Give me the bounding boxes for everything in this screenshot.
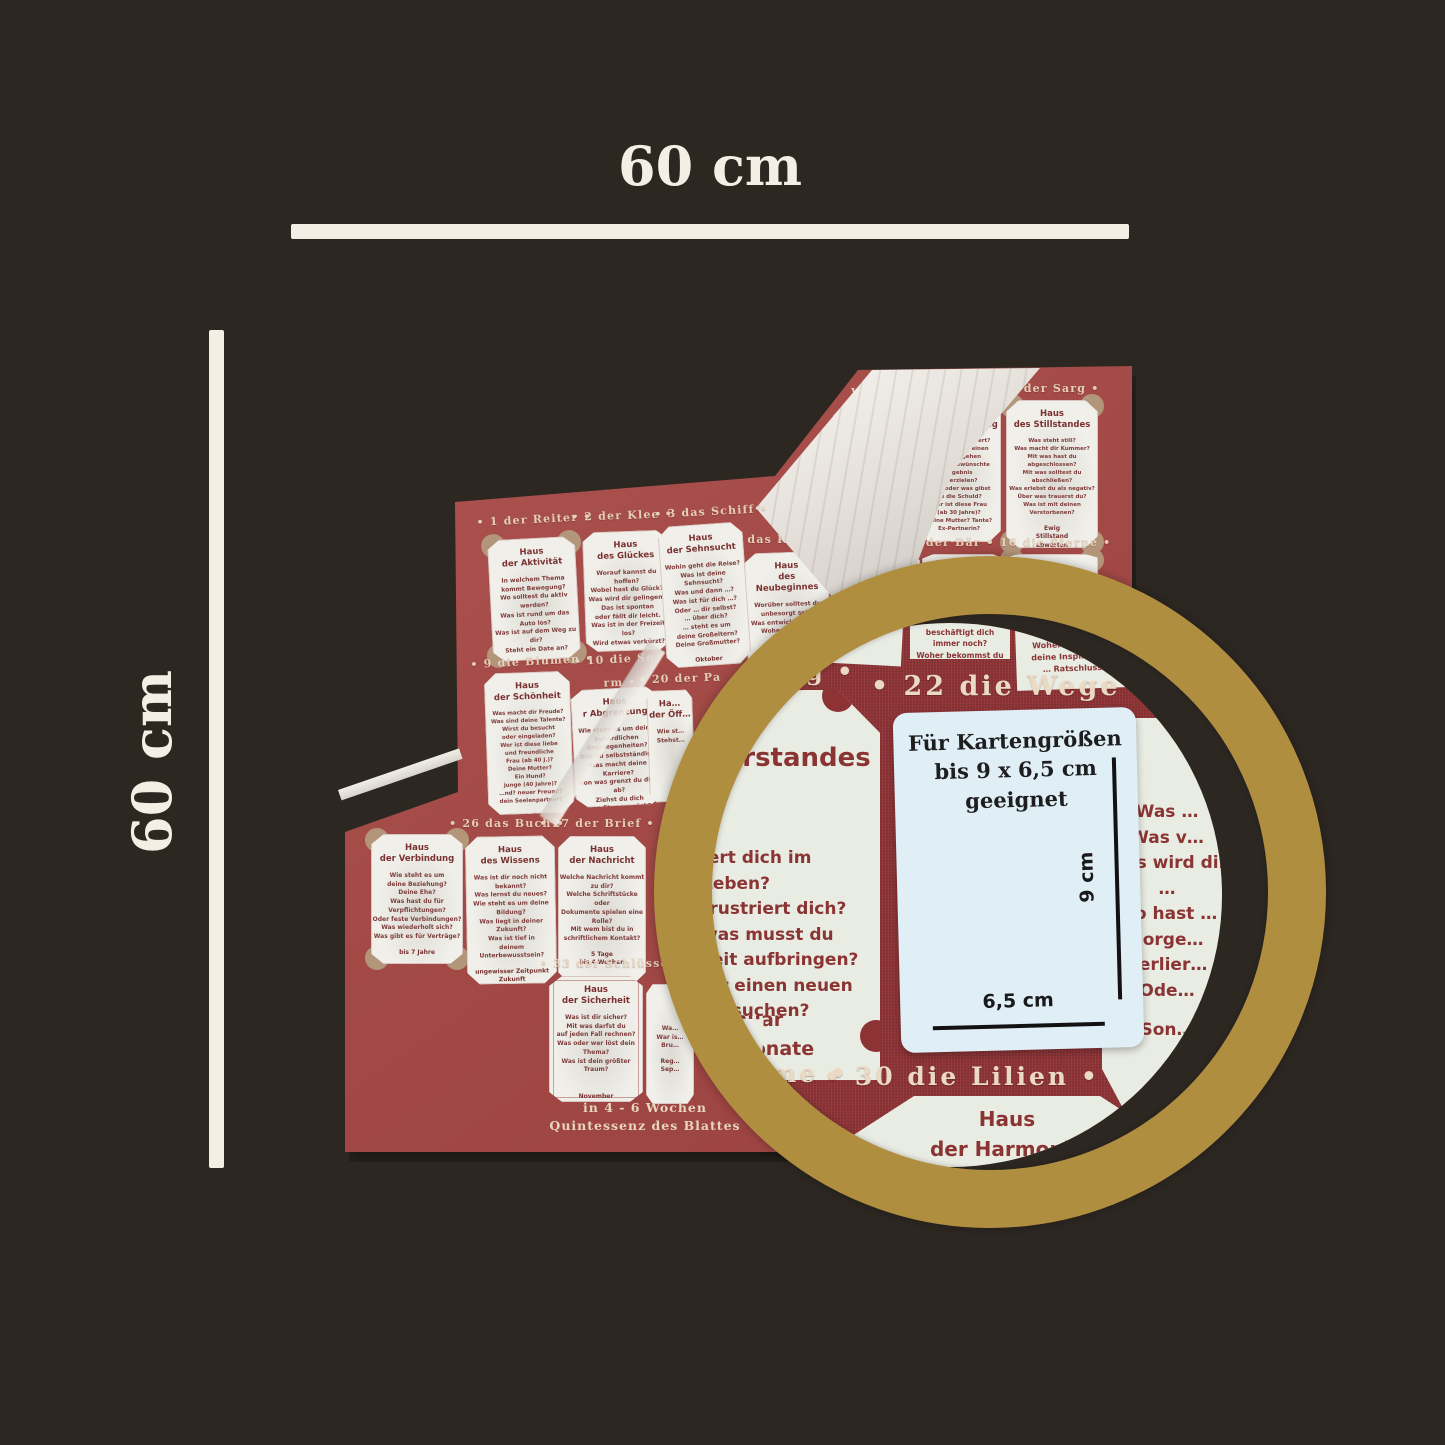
label-schluessel: • 33 der Schlüssel xyxy=(540,957,674,970)
height-dimension-label: 60 cm xyxy=(120,642,184,882)
house-card-stillstand: Hausdes Stillstandes Was steht still?Was… xyxy=(1006,400,1098,548)
house-card-verbindung: Hausder Verbindung Wie steht es umdeine … xyxy=(371,834,463,964)
height-dimension-bar xyxy=(209,330,224,1168)
product-image: 60 cm 60 cm Wolken • • 7 die Schlange • … xyxy=(0,0,1445,1445)
house-card-aktivitaet: Hausder Aktivität In welchem Themakommt … xyxy=(487,536,581,662)
house-card-sicherheit: Hausder Sicherheit Was ist dir sicher?Mi… xyxy=(549,976,643,1102)
width-dimension-bar xyxy=(291,224,1129,239)
folded-cloth-edge xyxy=(338,748,463,800)
width-dimension-label: 60 cm xyxy=(618,134,802,198)
magnifier-gold-ring xyxy=(654,556,1326,1228)
